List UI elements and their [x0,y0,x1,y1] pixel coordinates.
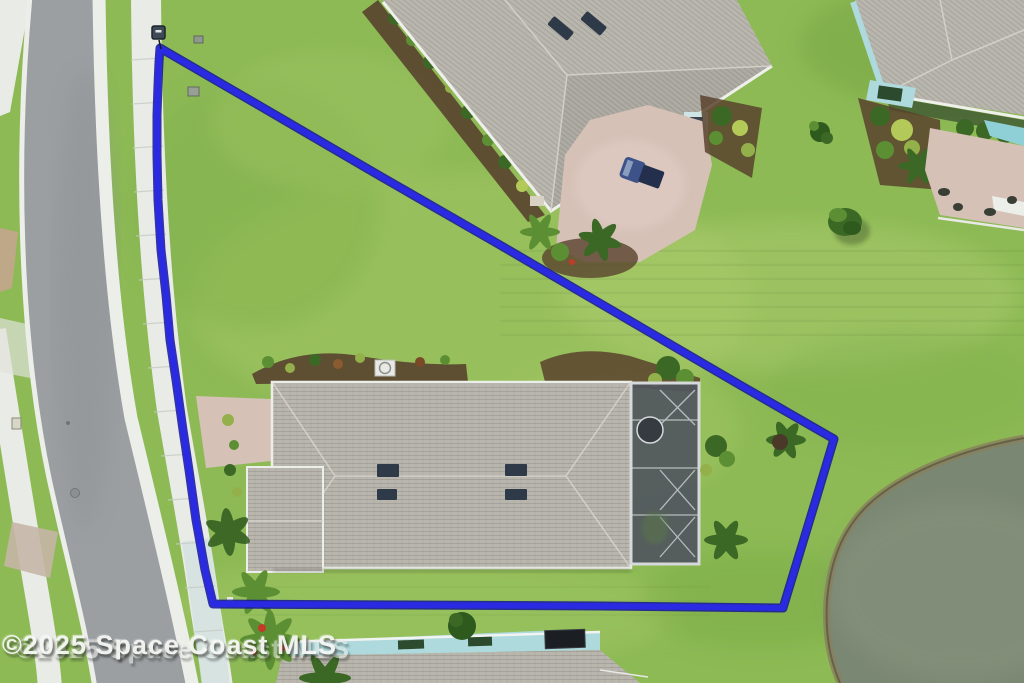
road-spot [66,421,70,425]
round-bush-highlight [449,613,463,627]
aerial-scene [0,0,1024,683]
mow-stripes-2 [240,575,710,625]
bottom-skylight-2 [468,637,492,647]
aerial-property-photo: ©2025 Space Coast MLS ©2025 Space Coast … [0,0,1024,683]
subject-driveway [196,396,271,468]
subject-roof-texture [272,382,631,568]
patio-highlight [575,140,685,230]
lanai-plants [642,512,668,544]
subject-wing-texture [247,467,323,572]
pool-enclosure [631,383,699,564]
survey-marker-glyph [156,30,162,33]
spa-cover [637,417,663,443]
utility-box-small [194,36,203,43]
ac-unit [375,360,395,376]
subject-eave-shadow [273,568,631,573]
bottom-skylight-1 [398,640,424,650]
utility-pedestal [12,418,21,429]
bottom-solar-panel [545,629,586,648]
watermark-text: ©2025 Space Coast MLS [2,630,337,661]
utility-box [188,87,199,96]
manhole-cover [71,489,80,498]
stepping-pad [530,196,544,206]
